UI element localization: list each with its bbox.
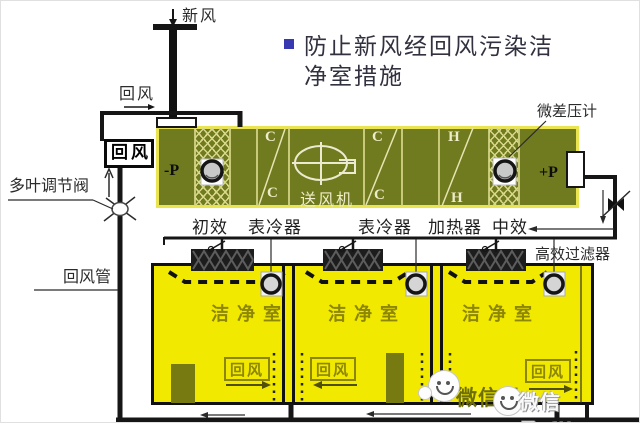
room3-return-label: 回风	[525, 359, 571, 383]
hepa-zigzag-pattern	[193, 251, 523, 269]
ahu-inlet-hood	[157, 118, 196, 127]
supply-fan-label: 送风机	[300, 186, 354, 210]
return-duct-label: 回风管	[63, 268, 111, 286]
pressure-minus-label: -P	[164, 162, 179, 180]
return-air-top-label: 回风	[119, 85, 155, 103]
diff-pressure-gauge-label: 微差压计	[537, 103, 597, 120]
heater-h-top: H	[448, 129, 460, 146]
gauge-label-leader	[509, 121, 546, 157]
damper-label-leader	[8, 200, 113, 209]
title-bullet-icon	[284, 39, 294, 49]
pre-filter-label: 初效	[192, 213, 228, 238]
cooler1-label: 表冷器	[248, 213, 302, 238]
room3-gauge-icon	[544, 272, 565, 296]
cleanroom-3-name: 洁净室	[462, 300, 540, 326]
cooler2-label: 表冷器	[358, 213, 412, 238]
room2-return-label: 回风	[310, 357, 356, 381]
cooler2-c-top: C	[372, 129, 383, 146]
watermark-emoji-1	[428, 370, 460, 402]
page-title-line2: 净室措施	[304, 57, 404, 91]
watermark-front-text: 微信号:filter	[519, 386, 639, 423]
watermark-blob	[418, 386, 432, 400]
cooler1-c-bottom: C	[267, 185, 278, 202]
bottom-duct-flow-arrow-1	[200, 412, 245, 418]
return-air-inlet-label: 回风	[111, 144, 151, 163]
ahu-outlet	[567, 152, 584, 187]
return-air-top-arrow-icon	[124, 104, 155, 110]
room1-return-arrow-icon	[226, 381, 271, 389]
supply-duct	[164, 237, 617, 245]
diffuser-dashed-arcs	[169, 272, 547, 282]
fresh-air-duct	[169, 30, 177, 119]
upflow-arrow-icon	[105, 169, 113, 197]
fresh-air-label: 新风	[182, 7, 218, 25]
mid-filter-gauge-icon	[493, 158, 516, 185]
room2-return-arrow-icon	[313, 381, 357, 389]
damper-valve-label: 多叶调节阀	[9, 177, 89, 195]
cleanroom-2-name: 洁净室	[328, 300, 406, 326]
pressure-plus-label: +P	[539, 164, 558, 182]
supply-fan-icon	[292, 142, 355, 185]
heater-h-bottom: H	[451, 190, 463, 207]
hepa-filter-label: 高效过滤器	[535, 246, 610, 263]
cooler1-c-top: C	[265, 129, 276, 146]
cleanroom-1-name: 洁净室	[211, 300, 289, 326]
room2-gauge-icon	[406, 272, 427, 296]
room1-return-label: 回风	[224, 357, 270, 381]
cooler2-c-bottom: C	[374, 187, 385, 204]
page-title-line1: 防止新风经回风污染洁	[304, 27, 554, 61]
hepa-feed-dampers	[208, 239, 499, 252]
mid-filter-label: 中效	[492, 213, 528, 238]
coil-diagonals	[259, 128, 473, 206]
mid-filter-annotation-line	[528, 226, 614, 232]
diagram-canvas: 防止新风经回风污染洁 净室措施 -P +P C C C C H H 送风机 初效…	[0, 0, 640, 423]
heater-label: 加热器	[428, 213, 482, 238]
downflow-arrow-icon	[600, 190, 606, 224]
room1-gauge-icon	[261, 272, 282, 296]
pre-filter-gauge-icon	[201, 159, 223, 185]
